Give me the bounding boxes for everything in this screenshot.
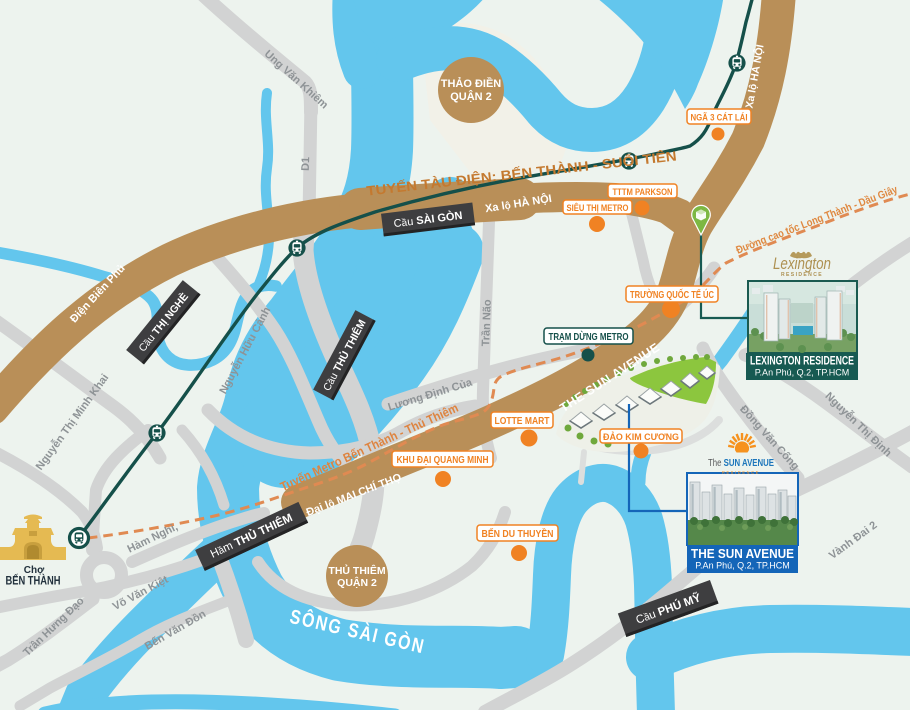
svg-text:RESIDENCE: RESIDENCE: [781, 272, 823, 278]
svg-text:BẾN DU THUYỀN: BẾN DU THUYỀN: [482, 527, 554, 540]
svg-text:P.An Phú, Q.2, TP.HCM: P.An Phú, Q.2, TP.HCM: [695, 561, 790, 571]
svg-text:ĐẢO KIM CƯƠNG: ĐẢO KIM CƯƠNG: [603, 431, 679, 443]
svg-text:QUẬN 2: QUẬN 2: [337, 576, 377, 589]
svg-text:The SUN AVENUE: The SUN AVENUE: [708, 458, 774, 469]
svg-text:NGÃ 3 CÁT LÁI: NGÃ 3 CÁT LÁI: [691, 113, 748, 124]
svg-text:P.An Phú, Q.2, TP.HCM: P.An Phú, Q.2, TP.HCM: [755, 368, 850, 378]
svg-text:KHU ĐẠI QUANG MINH: KHU ĐẠI QUANG MINH: [397, 455, 489, 466]
svg-text:LOTTE MART: LOTTE MART: [495, 416, 550, 427]
svg-text:BẾN THÀNH: BẾN THÀNH: [6, 573, 61, 588]
svg-text:QUẬN 2: QUẬN 2: [450, 90, 492, 103]
svg-text:THỦ THIÊM: THỦ THIÊM: [328, 564, 385, 577]
svg-text:Trần Não: Trần Não: [480, 299, 494, 347]
svg-text:RESIDENCE: RESIDENCE: [722, 470, 760, 475]
svg-text:THẢO ĐIỀN: THẢO ĐIỀN: [441, 77, 502, 90]
svg-text:SIÊU THỊ METRO: SIÊU THỊ METRO: [567, 202, 629, 213]
svg-text:TRƯỜNG QUỐC TẾ ÚC: TRƯỜNG QUỐC TẾ ÚC: [630, 287, 714, 301]
svg-text:THE SUN AVENUE: THE SUN AVENUE: [691, 546, 794, 561]
svg-text:TRẠM DỪNG METRO: TRẠM DỪNG METRO: [549, 330, 629, 343]
svg-text:D1: D1: [300, 157, 312, 171]
svg-text:Lexington: Lexington: [773, 254, 831, 273]
svg-text:TTTM PARKSON: TTTM PARKSON: [613, 187, 673, 197]
svg-text:LEXINGTON RESIDENCE: LEXINGTON RESIDENCE: [750, 356, 854, 368]
